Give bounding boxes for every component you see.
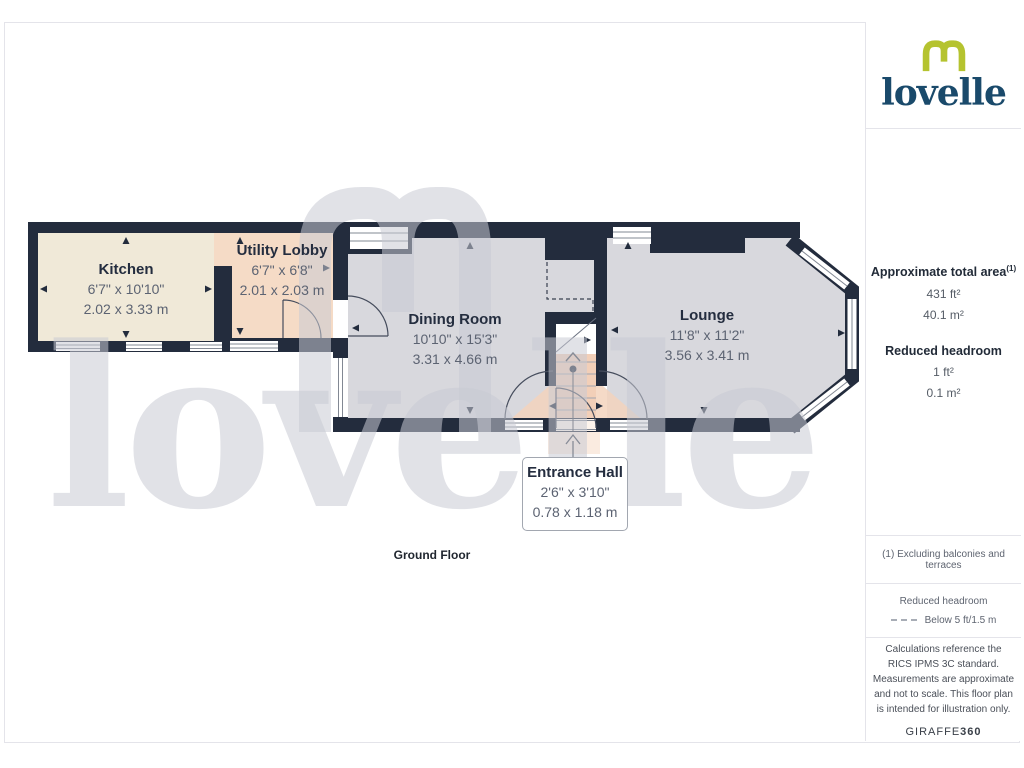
footnote-section: (1) Excluding balconies and terraces bbox=[866, 535, 1021, 583]
brand-logo-text: lovelle bbox=[881, 75, 1006, 111]
utility-window bbox=[230, 341, 278, 351]
credit-normal: GIRAFFE bbox=[905, 726, 960, 738]
legend-row: Below 5 ft/1.5 m bbox=[891, 615, 997, 626]
floorplan-page: lovelle Kitchen 6'7" x 10'10" 2.02 x 3.3… bbox=[0, 0, 1024, 768]
logo-section: lovelle bbox=[866, 22, 1021, 128]
total-area-title-text: Approximate total area bbox=[871, 266, 1006, 280]
legend-title: Reduced headroom bbox=[900, 596, 988, 607]
footnote-text: (1) Excluding balconies and terraces bbox=[866, 549, 1021, 571]
kitchen-utility-opening bbox=[214, 233, 232, 266]
giraffe360-credit: GIRAFFE360 bbox=[905, 726, 981, 738]
dashed-line-icon bbox=[891, 619, 917, 621]
sidebar: lovelle Approximate total area(1) 431 ft… bbox=[865, 22, 1021, 741]
area-info-section: Approximate total area(1) 431 ft² 40.1 m… bbox=[866, 128, 1021, 535]
reduced-headroom-ft: 1 ft² bbox=[933, 365, 954, 379]
floor-title: Ground Floor bbox=[372, 548, 492, 562]
total-area-footnote-ref: (1) bbox=[1006, 264, 1016, 273]
front-door-threshold bbox=[556, 419, 596, 431]
lovelle-house-icon bbox=[920, 39, 968, 73]
legend-section: Reduced headroom Below 5 ft/1.5 m bbox=[866, 583, 1021, 637]
total-area-m: 40.1 m² bbox=[923, 308, 964, 322]
legend-item-text: Below 5 ft/1.5 m bbox=[925, 615, 997, 626]
credit-bold: 360 bbox=[960, 726, 981, 738]
total-area-title: Approximate total area(1) bbox=[871, 264, 1016, 279]
kitchen-windows bbox=[56, 342, 222, 351]
total-area-ft: 431 ft² bbox=[926, 287, 960, 301]
kitchen-floor bbox=[38, 233, 214, 341]
reduced-headroom-m: 0.1 m² bbox=[926, 386, 960, 400]
disclaimer-text: Calculations reference the RICS IPMS 3C … bbox=[873, 642, 1015, 717]
floor-plan-geometry bbox=[28, 203, 852, 457]
entrance-landing bbox=[556, 324, 596, 354]
dining-left-window bbox=[335, 358, 347, 417]
reduced-headroom-title: Reduced headroom bbox=[885, 344, 1002, 358]
lounge-top-window bbox=[613, 227, 651, 244]
disclaimer-section: Calculations reference the RICS IPMS 3C … bbox=[866, 637, 1021, 741]
